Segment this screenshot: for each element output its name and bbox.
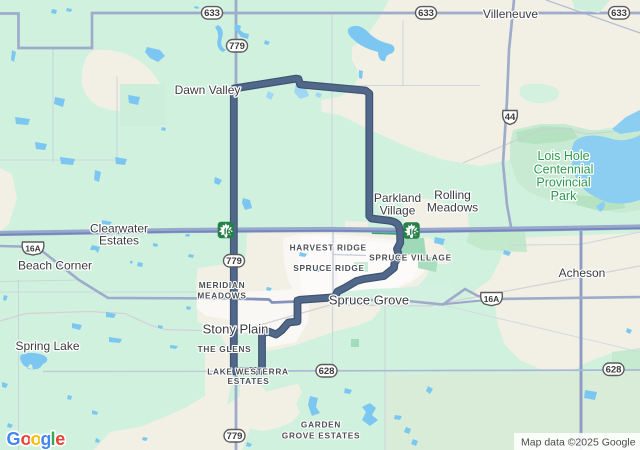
svg-text:16A: 16A [484,294,500,304]
svg-text:GARDEN: GARDEN [301,420,341,430]
svg-text:Park: Park [551,189,577,203]
svg-text:779: 779 [226,256,242,267]
svg-text:Spruce Grove: Spruce Grove [329,293,409,308]
svg-text:Dawn Valley: Dawn Valley [175,83,241,97]
svg-text:Spring Lake: Spring Lake [15,339,79,353]
svg-text:MERIDIAN: MERIDIAN [199,280,246,290]
svg-text:44: 44 [505,112,516,123]
svg-text:Lois Hole: Lois Hole [537,149,589,163]
svg-text:Provincial: Provincial [536,176,590,190]
svg-text:G: G [7,429,21,449]
svg-text:628: 628 [606,365,622,376]
svg-text:633: 633 [418,8,434,19]
svg-text:779: 779 [229,41,245,52]
svg-text:MEADOWS: MEADOWS [197,291,246,301]
svg-text:779: 779 [227,431,243,442]
svg-text:633: 633 [204,8,220,19]
svg-text:16A: 16A [25,244,41,254]
svg-text:Acheson: Acheson [559,266,606,280]
svg-text:THE GLENS: THE GLENS [198,344,252,354]
svg-text:633: 633 [611,8,627,19]
svg-text:Meadows: Meadows [427,201,478,215]
svg-text:Estates: Estates [99,234,139,248]
svg-text:HARVEST RIDGE: HARVEST RIDGE [290,243,367,253]
svg-text:GROVE ESTATES: GROVE ESTATES [282,431,360,441]
svg-text:SPRUCE VILLAGE: SPRUCE VILLAGE [369,253,452,263]
svg-text:Centennial: Centennial [534,162,594,176]
svg-text:Beach Corner: Beach Corner [18,259,92,273]
svg-text:LAKE WESTERRA: LAKE WESTERRA [207,367,288,377]
svg-text:Villeneuve: Villeneuve [483,7,538,21]
svg-text:Stony Plain: Stony Plain [203,322,269,337]
svg-text:SPRUCE RIDGE: SPRUCE RIDGE [293,263,365,273]
svg-text:628: 628 [319,366,335,377]
svg-text:Village: Village [380,204,416,218]
svg-text:e: e [55,429,65,449]
svg-text:Map data ©2025 Google: Map data ©2025 Google [521,437,636,449]
svg-text:ESTATES: ESTATES [228,376,270,386]
